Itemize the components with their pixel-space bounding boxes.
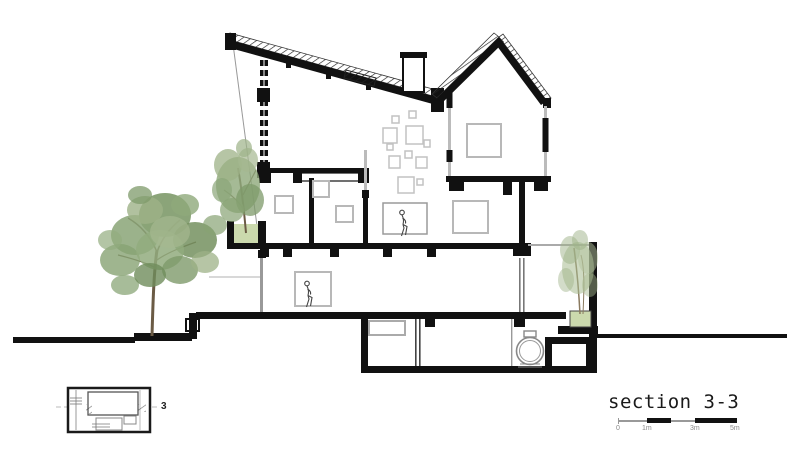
ground-line-right xyxy=(597,334,787,338)
key-plan-section-number: 3 xyxy=(161,401,167,412)
void-opening-frame xyxy=(383,203,427,234)
scale-bar-segment xyxy=(618,420,647,422)
scale-bar-segment xyxy=(671,420,695,422)
scale-bar-segment xyxy=(695,418,737,423)
key-plan-thumbnail xyxy=(56,388,160,432)
ground-line-left xyxy=(13,313,199,343)
scale-label-5m: 5m xyxy=(730,425,740,432)
perforated-wall-pattern xyxy=(383,111,430,193)
section-drawing xyxy=(0,0,800,450)
seated-figure-ground xyxy=(305,281,312,307)
scale-label-3m: 3m xyxy=(690,425,700,432)
glass-wall xyxy=(519,258,521,313)
ground-slab xyxy=(196,312,566,319)
interior-frames xyxy=(275,124,501,306)
terrace-planter xyxy=(227,221,266,246)
chimney xyxy=(400,52,427,92)
boiler-tank xyxy=(517,331,544,367)
architectural-section-sheet: 3 section 3-3 0 1m 3m 5m xyxy=(0,0,800,450)
seated-figure-upper xyxy=(400,210,407,236)
steel-column xyxy=(519,182,525,245)
scale-label-1m: 1m xyxy=(642,425,652,432)
scale-bar-segment xyxy=(647,418,671,423)
second-floor-slab xyxy=(227,182,531,257)
left-curtain-wall xyxy=(257,54,270,178)
scale-bar: 0 1m 3m 5m xyxy=(616,416,744,430)
sheet-title: section 3-3 xyxy=(608,391,739,413)
scale-label-0: 0 xyxy=(616,425,620,432)
basement-window-frame xyxy=(369,321,405,335)
third-floor-slab xyxy=(259,168,551,195)
attic-room-glazing xyxy=(447,92,549,178)
